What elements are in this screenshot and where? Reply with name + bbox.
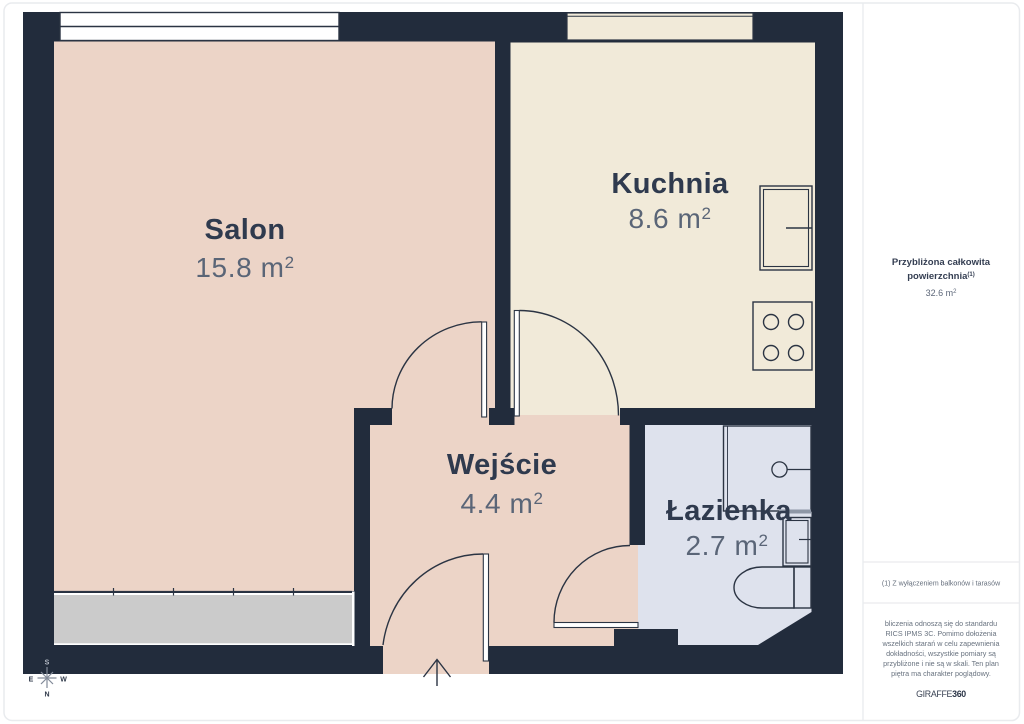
svg-text:bliczenia odnoszą się do stand: bliczenia odnoszą się do standardu (885, 619, 997, 628)
svg-text:N: N (44, 692, 49, 699)
svg-text:W: W (60, 677, 67, 684)
svg-text:Przybliżona całkowita: Przybliżona całkowita (892, 257, 991, 268)
svg-text:S: S (45, 660, 50, 667)
svg-text:GIRAFFE360: GIRAFFE360 (916, 689, 966, 699)
svg-text:Kuchnia: Kuchnia (611, 168, 729, 200)
svg-text:piętra ma charakter poglądowy.: piętra ma charakter poglądowy. (891, 669, 991, 678)
svg-text:32.6 m2: 32.6 m2 (926, 288, 958, 298)
svg-text:powierzchnia(1): powierzchnia(1) (907, 271, 975, 282)
svg-text:8.6 m2: 8.6 m2 (628, 203, 711, 234)
svg-text:4.4 m2: 4.4 m2 (460, 488, 543, 519)
svg-text:(1) Z wyłączeniem balkonów i t: (1) Z wyłączeniem balkonów i tarasów (882, 581, 1001, 588)
svg-text:E: E (29, 677, 34, 684)
svg-text:Łazienka: Łazienka (666, 495, 792, 527)
svg-text:przybliżone i nie są w skali.: przybliżone i nie są w skali. Ten plan (883, 659, 999, 668)
svg-text:RICS IPMS 3C. Pomimo dołożenia: RICS IPMS 3C. Pomimo dołożenia (885, 629, 996, 638)
svg-text:15.8 m2: 15.8 m2 (195, 252, 294, 283)
svg-text:Salon: Salon (205, 214, 286, 246)
svg-text:dokładności, wszystkie pomiary: dokładności, wszystkie pomiary są (886, 649, 996, 658)
svg-text:wszelkich starań w celu zapewn: wszelkich starań w celu zapewnienia (881, 639, 999, 648)
svg-text:Wejście: Wejście (447, 449, 557, 481)
svg-text:2.7 m2: 2.7 m2 (685, 530, 768, 561)
